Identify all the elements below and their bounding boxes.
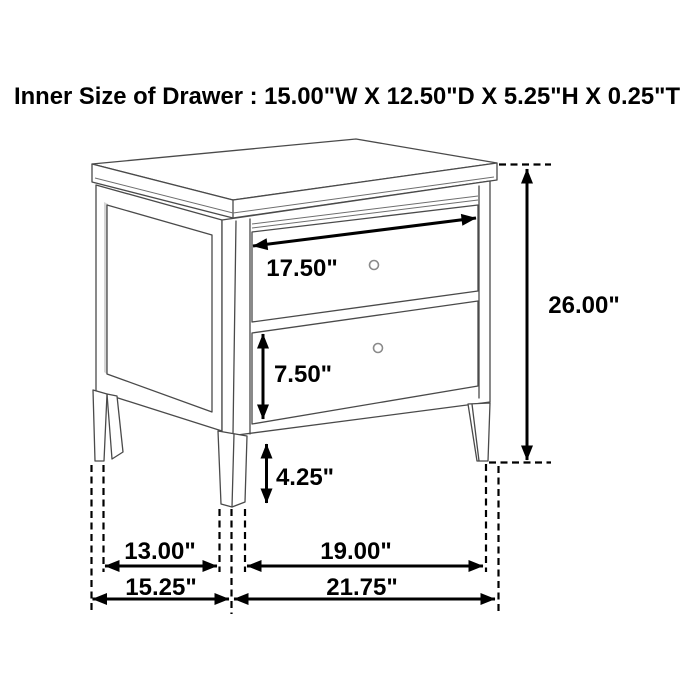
label-drawer-face-height: 7.50": [274, 361, 332, 388]
label-drawer-face-width: 17.50": [266, 255, 337, 282]
label-width-overall: 21.75": [326, 574, 397, 601]
side-panel: [96, 185, 222, 431]
dimension-leg-height: 4.25": [267, 444, 335, 503]
nightstand-diagram: Inner Size of Drawer : 15.00"W X 12.50"D…: [0, 0, 700, 700]
dimension-depth-overall: 15.25": [93, 574, 230, 601]
dimension-overall-height: 26.00": [527, 169, 620, 460]
label-overall-height: 26.00": [548, 292, 619, 319]
top-drawer-knob-icon: [370, 261, 379, 270]
dimension-width-overall: 21.75": [234, 574, 495, 601]
leg-back-left: [93, 390, 107, 461]
page-title: Inner Size of Drawer : 15.00"W X 12.50"D…: [14, 83, 680, 110]
label-depth-overall: 15.25": [125, 574, 196, 601]
leg-front-right: [468, 403, 490, 461]
label-depth-inner: 13.00": [124, 538, 195, 565]
dimension-width-inner: 19.00": [247, 538, 483, 566]
furniture-dimension-diagram: Inner Size of Drawer : 15.00"W X 12.50"D…: [0, 0, 700, 700]
bottom-drawer-knob-icon: [374, 344, 383, 353]
label-leg-height: 4.25": [276, 464, 334, 491]
leg-back-left-splay: [107, 394, 123, 459]
dimension-depth-inner: 13.00": [105, 538, 217, 566]
label-width-inner: 19.00": [320, 538, 391, 565]
